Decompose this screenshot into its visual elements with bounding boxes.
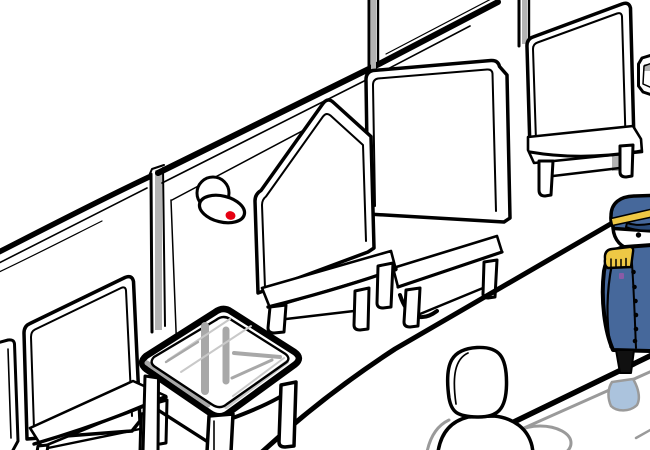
passenger-head bbox=[448, 347, 507, 417]
table-leg bbox=[279, 382, 296, 447]
seat-leg bbox=[37, 445, 48, 450]
conductor-eye bbox=[636, 232, 641, 237]
table-leg bbox=[143, 376, 159, 450]
train-interior-scene bbox=[0, 0, 650, 450]
seat-leg bbox=[377, 263, 393, 308]
seat-leg bbox=[404, 288, 420, 327]
conductor-trousers bbox=[616, 350, 634, 373]
wall-seam-post bbox=[155, 170, 162, 330]
seat-back bbox=[366, 60, 510, 222]
seat-leg bbox=[354, 288, 369, 330]
epaulette bbox=[605, 247, 633, 268]
conductor-reflection bbox=[608, 379, 638, 410]
seat-leg bbox=[268, 305, 286, 333]
seat-armrest-fragment bbox=[639, 55, 650, 95]
table-leg bbox=[207, 414, 233, 450]
bench-seat-1-partial bbox=[0, 340, 18, 450]
conductor[interactable] bbox=[603, 196, 650, 374]
coat-badge bbox=[619, 273, 624, 279]
seat-leg bbox=[539, 161, 553, 196]
seat-leg bbox=[620, 145, 633, 177]
